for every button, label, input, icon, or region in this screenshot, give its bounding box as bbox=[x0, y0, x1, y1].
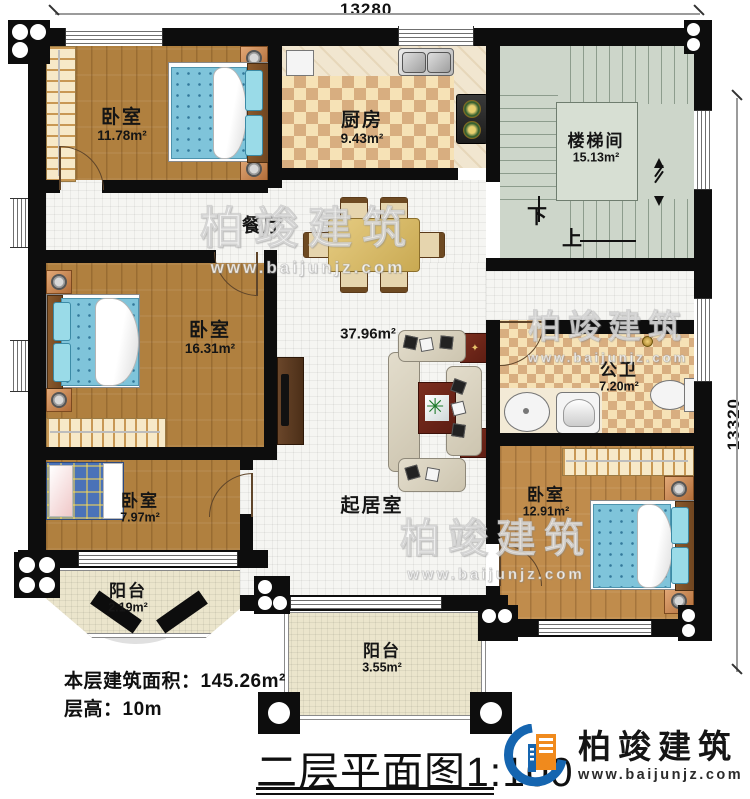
wardrobe-bed4 bbox=[562, 448, 694, 476]
pillar-ornament bbox=[258, 596, 272, 610]
floor-height-label: 层高： bbox=[64, 699, 123, 720]
cushion bbox=[419, 337, 434, 352]
stair-arrow-up-icon bbox=[654, 158, 664, 168]
room-label-bedroom-bottom-right: 卧室 12.91m² bbox=[523, 485, 570, 518]
room-name: 阳台 bbox=[108, 581, 148, 600]
company-logo-icon bbox=[502, 724, 568, 788]
room-name: 楼梯间 bbox=[568, 131, 625, 150]
window-bath-east bbox=[694, 298, 712, 382]
pillar-ornament bbox=[687, 23, 700, 36]
company-name: 柏竣建筑 bbox=[578, 730, 743, 763]
bed-single bbox=[46, 462, 124, 520]
room-label-bedroom-bottom-left: 卧室 7.97m² bbox=[120, 491, 160, 524]
burner-icon bbox=[463, 121, 481, 139]
room-name: 卧室 bbox=[185, 320, 235, 341]
stairs-down-label: 下 bbox=[527, 200, 547, 229]
stove bbox=[456, 94, 488, 144]
wall-seg bbox=[28, 180, 60, 193]
ceiling-light-icon bbox=[642, 336, 653, 347]
wall-bath-stub bbox=[486, 320, 500, 334]
pillar-ornament bbox=[39, 577, 55, 593]
floor-area-note: 本层建筑面积：145.26m² bbox=[64, 666, 286, 693]
lamp-icon bbox=[246, 161, 262, 177]
door-bathroom bbox=[500, 322, 544, 366]
floor-area-value: 145.26m² bbox=[201, 671, 286, 692]
pillar-ornament bbox=[682, 609, 695, 622]
wall-bath-south bbox=[486, 433, 712, 446]
room-label-balcony-bottom: 阳台 3.55m² bbox=[362, 641, 402, 674]
room-area: 7.97m² bbox=[120, 511, 160, 525]
pillar-ornament bbox=[12, 42, 28, 58]
bed-double bbox=[590, 500, 694, 590]
door-bed1 bbox=[60, 146, 104, 190]
window-bed3-south bbox=[78, 552, 238, 566]
window-bed2-west bbox=[10, 340, 28, 392]
washing-machine bbox=[556, 392, 600, 434]
hall-floor bbox=[486, 271, 694, 320]
room-label-stairwell: 楼梯间 15.13m² bbox=[568, 131, 625, 164]
door-bed4 bbox=[500, 544, 542, 586]
bathroom-sink bbox=[504, 392, 550, 432]
cushion bbox=[425, 467, 440, 482]
floor-height-note: 层高：10m bbox=[64, 694, 162, 721]
room-area: 12.91m² bbox=[523, 505, 570, 519]
door-leaf bbox=[499, 544, 501, 586]
fridge bbox=[286, 50, 314, 76]
sink-basin bbox=[402, 52, 426, 73]
wall-bed4-west bbox=[486, 446, 500, 544]
room-name: 厨房 bbox=[341, 110, 384, 131]
dimension-top: 13280 bbox=[340, 0, 392, 20]
room-label-dining: 餐厅 bbox=[242, 215, 284, 236]
room-label-living: 起居室 bbox=[340, 495, 403, 516]
pillow bbox=[671, 507, 689, 544]
door-bed3 bbox=[209, 473, 253, 517]
floor-height-value: 10m bbox=[123, 699, 163, 720]
dimension-right: 13320 bbox=[724, 398, 744, 450]
room-label-balcony-left: 阳台 2.19m² bbox=[108, 581, 148, 614]
window-living-south bbox=[290, 597, 442, 609]
door-leaf bbox=[59, 146, 61, 190]
corner-pillar bbox=[8, 20, 50, 64]
room-label-bedroom-mid-left: 卧室 16.31m² bbox=[185, 320, 235, 356]
pillar-ornament bbox=[30, 24, 46, 40]
pillar-ornament bbox=[682, 624, 695, 637]
pillar-ornament bbox=[19, 557, 35, 573]
drain-icon bbox=[523, 408, 529, 414]
pillow bbox=[53, 343, 71, 382]
room-name: 起居室 bbox=[340, 495, 403, 516]
dimension-right-line bbox=[736, 98, 738, 672]
room-area: 7.20m² bbox=[599, 380, 639, 394]
wall-bed2-north bbox=[28, 250, 216, 263]
floor-area-label: 本层建筑面积： bbox=[64, 671, 201, 692]
room-area: 37.96m² bbox=[340, 327, 396, 344]
wardrobe-bed2 bbox=[46, 418, 166, 449]
room-name: 餐厅 bbox=[242, 215, 284, 236]
floorplan-canvas: 13280 13320 bbox=[0, 0, 750, 799]
window-bed1-north bbox=[65, 28, 163, 46]
title-underline bbox=[256, 793, 494, 795]
room-label-kitchen: 厨房 9.43m² bbox=[341, 110, 384, 146]
bed-double bbox=[46, 294, 140, 388]
pillar-ornament bbox=[12, 24, 28, 40]
pillow bbox=[245, 70, 263, 111]
wall-bath-north bbox=[544, 320, 694, 334]
door-bed2 bbox=[214, 252, 258, 296]
kitchen-sink bbox=[398, 48, 454, 76]
wardrobe-rail bbox=[566, 460, 688, 462]
pillar-ornament bbox=[19, 577, 35, 593]
wardrobe-rail bbox=[50, 431, 160, 433]
door-leaf bbox=[251, 473, 253, 517]
pillar-ornament bbox=[498, 609, 512, 623]
dining-chair bbox=[303, 232, 331, 258]
up-guide-line bbox=[580, 240, 636, 242]
dimension-top-line bbox=[55, 13, 700, 15]
plant-icon: ✳ bbox=[426, 396, 444, 418]
room-area: 9.43m² bbox=[341, 131, 384, 146]
company-website: www.baijunjz.com bbox=[578, 767, 743, 783]
stair-treads-top bbox=[558, 46, 694, 104]
company-logo: 柏竣建筑 www.baijunjz.com bbox=[502, 724, 743, 788]
pillow bbox=[49, 465, 73, 517]
corner-pillar bbox=[254, 576, 290, 614]
pillar-ornament bbox=[268, 702, 290, 724]
nightstand bbox=[664, 476, 694, 502]
pillar-ornament bbox=[480, 702, 502, 724]
dining-chair bbox=[417, 232, 445, 258]
wall-stair-south bbox=[486, 258, 712, 271]
pillar-ornament bbox=[687, 38, 700, 51]
room-area: 2.19m² bbox=[108, 601, 148, 615]
room-area: 3.55m² bbox=[362, 661, 402, 675]
balcony-left-floor bbox=[40, 566, 258, 638]
wall-bed2-east bbox=[264, 250, 277, 460]
corner-pillar bbox=[678, 605, 712, 641]
wall-bath-west bbox=[486, 334, 500, 433]
wall-kitchen-stair bbox=[486, 28, 500, 182]
room-name: 阳台 bbox=[362, 641, 402, 660]
pillow bbox=[53, 302, 71, 341]
corner-pillar bbox=[478, 605, 518, 641]
balcony-pillar bbox=[258, 692, 300, 734]
nightstand bbox=[46, 388, 72, 412]
pillow bbox=[245, 115, 263, 156]
cushion bbox=[403, 335, 418, 350]
room-name: 公卫 bbox=[599, 360, 639, 379]
burner-icon bbox=[463, 100, 481, 118]
wall-bed1-kitchen bbox=[268, 28, 282, 188]
wall-kitchen-south bbox=[282, 168, 458, 180]
room-name: 卧室 bbox=[120, 491, 160, 510]
wall-bed3-east-stub bbox=[240, 460, 253, 470]
corner-pillar bbox=[14, 552, 60, 598]
wall-seg bbox=[102, 180, 268, 193]
window-dining-west bbox=[10, 198, 28, 248]
pillar-ornament bbox=[258, 580, 272, 594]
wall-west bbox=[28, 28, 46, 568]
stair-arrow-down-icon bbox=[654, 196, 664, 206]
bed-double bbox=[168, 62, 268, 162]
living-area-value: 37.96m² bbox=[340, 327, 396, 344]
stair-treads-left bbox=[500, 88, 558, 212]
tv bbox=[281, 374, 289, 426]
pillow bbox=[671, 547, 689, 584]
door-leaf bbox=[500, 321, 544, 323]
room-label-bathroom: 公卫 7.20m² bbox=[599, 360, 639, 393]
room-area: 15.13m² bbox=[568, 151, 625, 165]
title-underline bbox=[256, 787, 494, 790]
room-area: 16.31m² bbox=[185, 341, 235, 356]
sink-basin bbox=[427, 52, 451, 73]
stairs-up-label: 上 bbox=[562, 222, 582, 251]
window-kitchen-north bbox=[398, 26, 474, 46]
room-name: 卧室 bbox=[523, 485, 570, 504]
dimension-tick bbox=[48, 4, 59, 15]
corner-pillar bbox=[684, 20, 712, 54]
sofa-long bbox=[388, 352, 420, 472]
lamp-icon bbox=[671, 481, 687, 497]
door-leaf bbox=[256, 252, 258, 296]
pillar-ornament bbox=[273, 596, 287, 610]
window-stair-east bbox=[694, 110, 712, 190]
pillar-ornament bbox=[39, 557, 55, 573]
company-logo-text: 柏竣建筑 www.baijunjz.com bbox=[578, 730, 743, 783]
room-name: 卧室 bbox=[97, 107, 147, 128]
dining-table bbox=[328, 218, 420, 272]
pillar-ornament bbox=[482, 609, 496, 623]
lamp-icon bbox=[51, 274, 67, 290]
room-label-bedroom-top-left: 卧室 11.78m² bbox=[97, 107, 147, 143]
window-bed4-south bbox=[538, 621, 652, 635]
wall-bed2-south bbox=[28, 447, 277, 460]
lamp-icon bbox=[51, 392, 67, 408]
cushion bbox=[439, 335, 453, 349]
washer-drum bbox=[563, 399, 595, 427]
room-area: 11.78m² bbox=[97, 128, 147, 143]
cushion bbox=[451, 423, 466, 438]
nightstand bbox=[46, 270, 72, 294]
